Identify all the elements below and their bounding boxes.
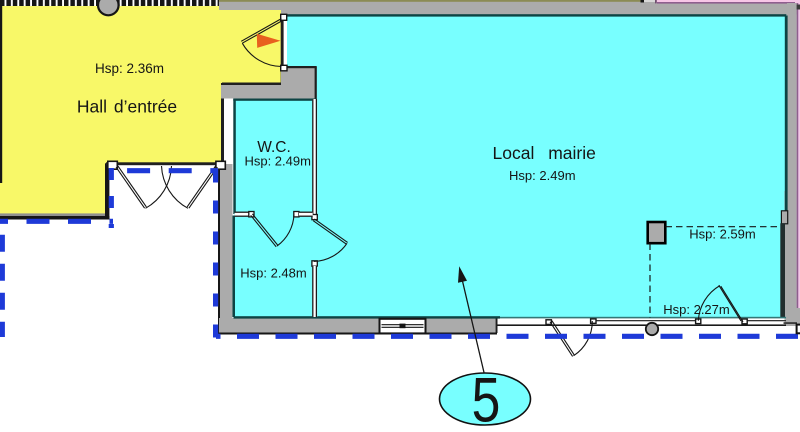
- svg-text:Hsp: 2.49m: Hsp: 2.49m: [509, 168, 575, 183]
- svg-text:Hsp: 2.59m: Hsp: 2.59m: [689, 226, 755, 241]
- svg-text:Hsp: 2.36m: Hsp: 2.36m: [95, 61, 164, 76]
- svg-text:Hall d’entrée: Hall d’entrée: [77, 96, 177, 116]
- svg-text:Hsp: 2.48m: Hsp: 2.48m: [240, 266, 306, 281]
- svg-text:5: 5: [472, 366, 501, 432]
- svg-text:Local mairie: Local mairie: [493, 143, 596, 163]
- svg-text:Hsp: 2.27m: Hsp: 2.27m: [663, 302, 729, 317]
- svg-text:Hsp: 2.49m: Hsp: 2.49m: [244, 154, 310, 169]
